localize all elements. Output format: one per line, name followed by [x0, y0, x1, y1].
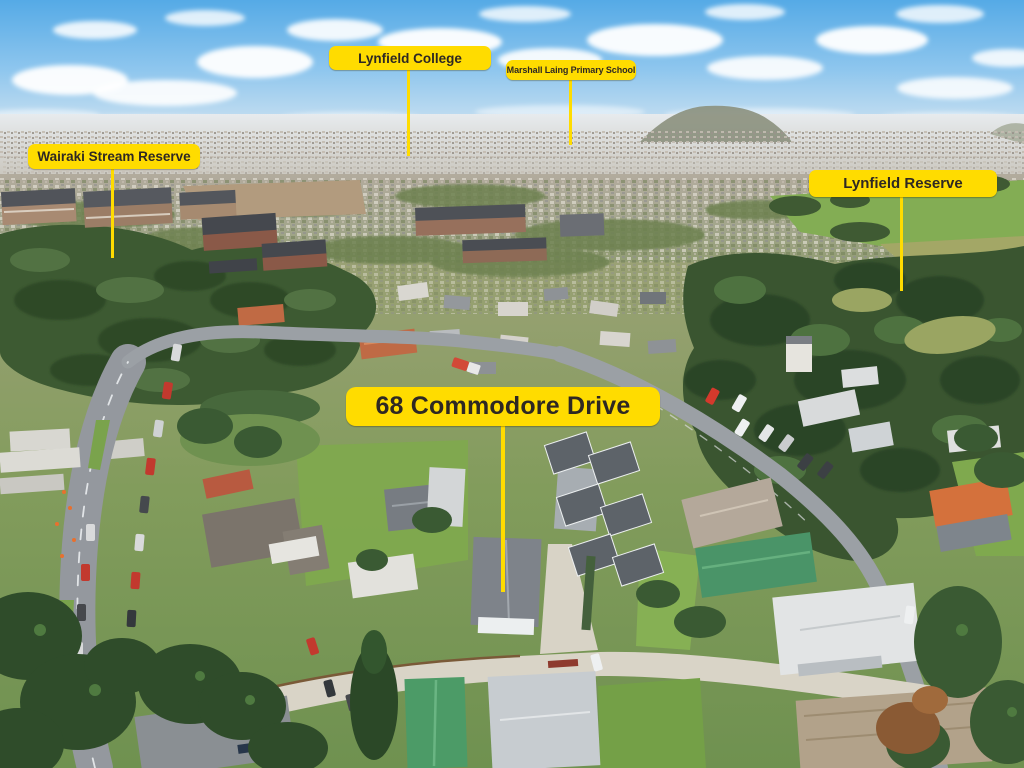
aerial-photo: [0, 0, 1024, 768]
pointer-line-reserve: [900, 196, 903, 291]
callout-label: Lynfield College: [358, 51, 462, 66]
callout-label: 68 Commodore Drive: [375, 392, 630, 421]
callout-property-address: 68 Commodore Drive: [346, 387, 660, 426]
callout-primary-school: Marshall Laing Primary School: [506, 60, 636, 80]
callout-label: Lynfield Reserve: [843, 175, 963, 192]
callout-stream-reserve: Wairaki Stream Reserve: [28, 144, 200, 169]
pointer-line-primary-school: [569, 80, 572, 145]
pointer-line-property: [501, 425, 505, 592]
callout-label: Wairaki Stream Reserve: [37, 149, 190, 164]
callout-label: Marshall Laing Primary School: [507, 65, 636, 75]
pointer-line-stream-reserve: [111, 168, 114, 258]
callout-lynfield-college: Lynfield College: [329, 46, 491, 70]
callout-lynfield-reserve: Lynfield Reserve: [809, 170, 997, 197]
target-house: [470, 537, 541, 635]
pointer-line-college: [407, 70, 410, 156]
aerial-photo-stage: Lynfield College Marshall Laing Primary …: [0, 0, 1024, 768]
